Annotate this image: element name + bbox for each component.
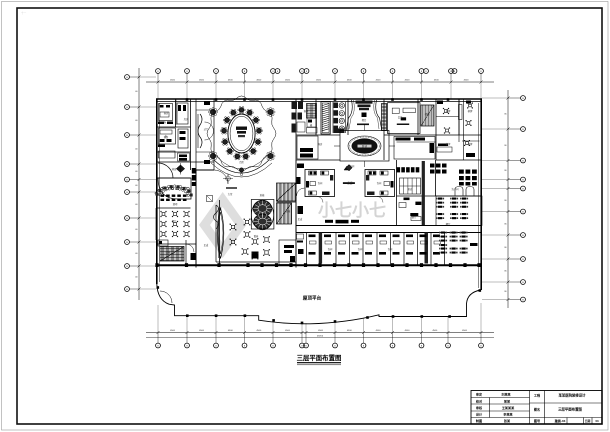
svg-text:制图: 制图: [476, 418, 482, 423]
svg-text:日期: 日期: [585, 419, 591, 423]
svg-text:工程: 工程: [534, 392, 541, 397]
svg-text:李某某: 李某某: [502, 412, 513, 417]
svg-text:4500: 4500: [316, 80, 322, 82]
svg-text:4500: 4500: [376, 330, 382, 332]
svg-text:03: 03: [595, 419, 599, 423]
svg-text:三层平面布置图: 三层平面布置图: [297, 353, 342, 362]
svg-text:图号: 图号: [534, 418, 540, 423]
svg-text:4500: 4500: [376, 80, 382, 82]
svg-text:4500: 4500: [285, 80, 291, 82]
svg-text:4500: 4500: [170, 80, 176, 82]
svg-text:刘某某: 刘某某: [501, 392, 511, 397]
svg-text:图名: 图名: [534, 407, 540, 412]
svg-text:4500: 4500: [347, 80, 353, 82]
svg-text:4500: 4500: [199, 80, 205, 82]
svg-text:4500: 4500: [318, 330, 324, 332]
svg-text:4500: 4500: [347, 330, 353, 332]
svg-text:4500: 4500: [434, 80, 440, 82]
svg-text:4500: 4500: [228, 330, 234, 332]
svg-text:三层平面布置图: 三层平面布置图: [558, 407, 582, 412]
svg-text:4500: 4500: [464, 80, 470, 82]
svg-text:某某: 某某: [504, 398, 511, 403]
svg-text:设计: 设计: [476, 412, 483, 417]
svg-text:审定: 审定: [476, 392, 483, 397]
svg-text:审核: 审核: [476, 405, 483, 410]
svg-text:4500: 4500: [432, 330, 438, 332]
svg-text:4500: 4500: [285, 330, 291, 332]
svg-text:屋顶平台: 屋顶平台: [303, 295, 322, 302]
svg-text:4500: 4500: [405, 330, 411, 332]
svg-text:王某某某: 王某某某: [502, 405, 515, 410]
svg-text:餐厅: 餐厅: [446, 222, 451, 226]
svg-text:4500: 4500: [256, 330, 262, 332]
svg-text:张某: 张某: [504, 418, 511, 423]
svg-text:小七小七: 小七小七: [318, 201, 386, 220]
svg-text:十一: 十一: [21, 11, 27, 15]
svg-text:49200: 49200: [317, 336, 324, 338]
svg-text:4500: 4500: [170, 330, 176, 332]
svg-text:舞池: 舞池: [362, 144, 368, 148]
svg-text:4500: 4500: [256, 80, 262, 82]
svg-text:4500: 4500: [462, 330, 468, 332]
svg-text:4500: 4500: [405, 80, 411, 82]
svg-text:4500: 4500: [228, 80, 234, 82]
svg-text:某某医院装修设计: 某某医院装修设计: [558, 392, 586, 397]
svg-text:建施-03: 建施-03: [555, 418, 566, 423]
svg-text:校对: 校对: [475, 398, 483, 403]
svg-text:4500: 4500: [199, 330, 205, 332]
